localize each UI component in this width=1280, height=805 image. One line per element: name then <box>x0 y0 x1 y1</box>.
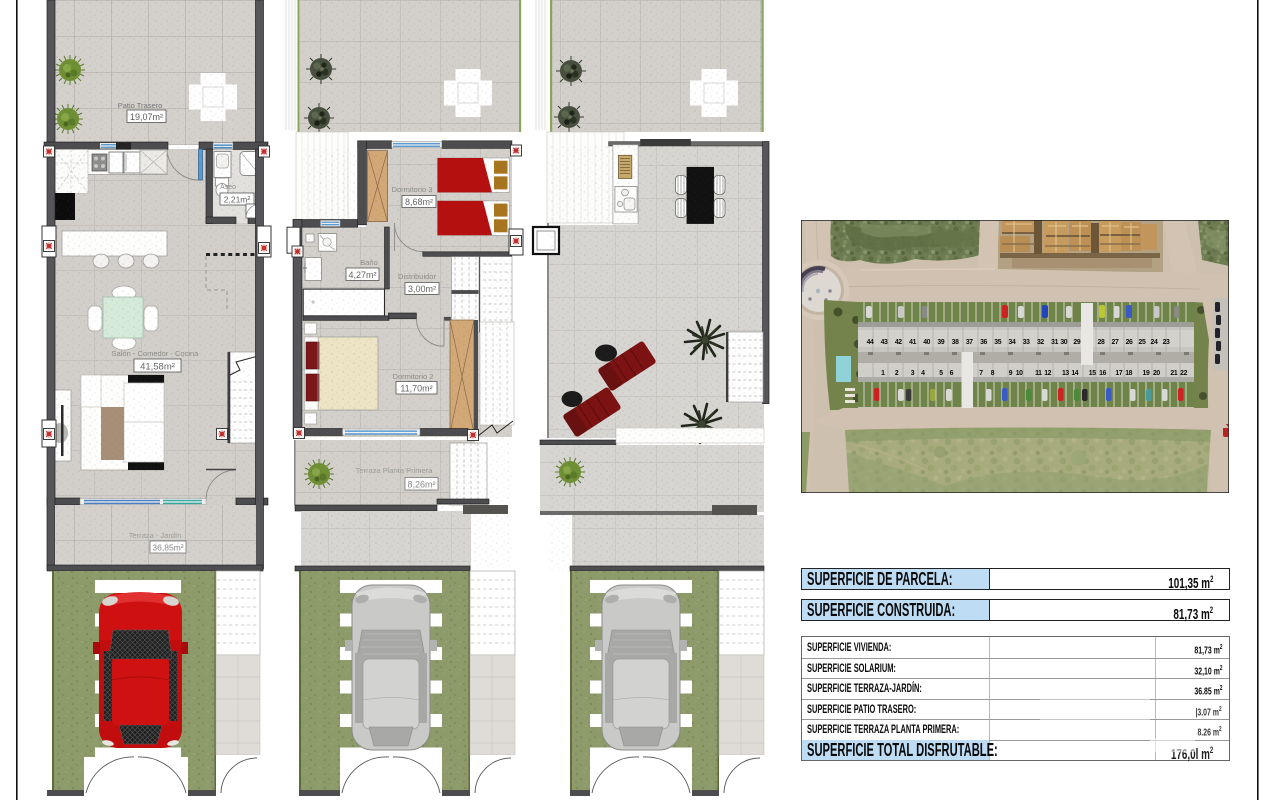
svg-text:24: 24 <box>1151 337 1158 346</box>
svg-text:13: 13 <box>1062 368 1069 377</box>
svg-text:14: 14 <box>1071 368 1078 377</box>
svg-text:23: 23 <box>1163 337 1170 346</box>
svg-text:9: 9 <box>1009 368 1013 377</box>
svg-text:30: 30 <box>1060 337 1067 346</box>
svg-text:22: 22 <box>1180 368 1187 377</box>
svg-text:1: 1 <box>881 368 885 377</box>
svg-text:2: 2 <box>895 368 899 377</box>
svg-text:12: 12 <box>1044 368 1051 377</box>
svg-text:29: 29 <box>1073 337 1080 346</box>
svg-text:15: 15 <box>1089 368 1096 377</box>
svg-text:43: 43 <box>881 337 888 346</box>
svg-text:16: 16 <box>1099 368 1106 377</box>
svg-text:7: 7 <box>979 368 983 377</box>
svg-text:25: 25 <box>1139 337 1146 346</box>
svg-text:27: 27 <box>1112 337 1119 346</box>
svg-text:37: 37 <box>966 337 973 346</box>
svg-text:10: 10 <box>1016 368 1023 377</box>
svg-text:35: 35 <box>994 337 1001 346</box>
svg-text:21: 21 <box>1170 368 1177 377</box>
svg-text:42: 42 <box>895 337 902 346</box>
svg-text:32: 32 <box>1037 337 1044 346</box>
svg-text:8: 8 <box>991 368 995 377</box>
svg-text:18: 18 <box>1125 368 1132 377</box>
svg-text:6: 6 <box>950 368 954 377</box>
svg-text:40: 40 <box>923 337 930 346</box>
svg-text:39: 39 <box>937 337 944 346</box>
svg-text:41: 41 <box>909 337 916 346</box>
svg-text:28: 28 <box>1098 337 1105 346</box>
svg-text:34: 34 <box>1009 337 1016 346</box>
svg-text:36: 36 <box>980 337 987 346</box>
svg-text:3: 3 <box>911 368 915 377</box>
svg-text:5: 5 <box>939 368 943 377</box>
svg-text:4: 4 <box>921 368 925 377</box>
svg-text:11: 11 <box>1035 368 1042 377</box>
svg-text:19: 19 <box>1143 368 1150 377</box>
svg-text:20: 20 <box>1153 368 1160 377</box>
svg-text:44: 44 <box>867 337 874 346</box>
svg-text:33: 33 <box>1023 337 1030 346</box>
svg-text:26: 26 <box>1126 337 1133 346</box>
svg-text:38: 38 <box>952 337 959 346</box>
svg-text:17: 17 <box>1115 368 1122 377</box>
svg-text:31: 31 <box>1051 337 1058 346</box>
